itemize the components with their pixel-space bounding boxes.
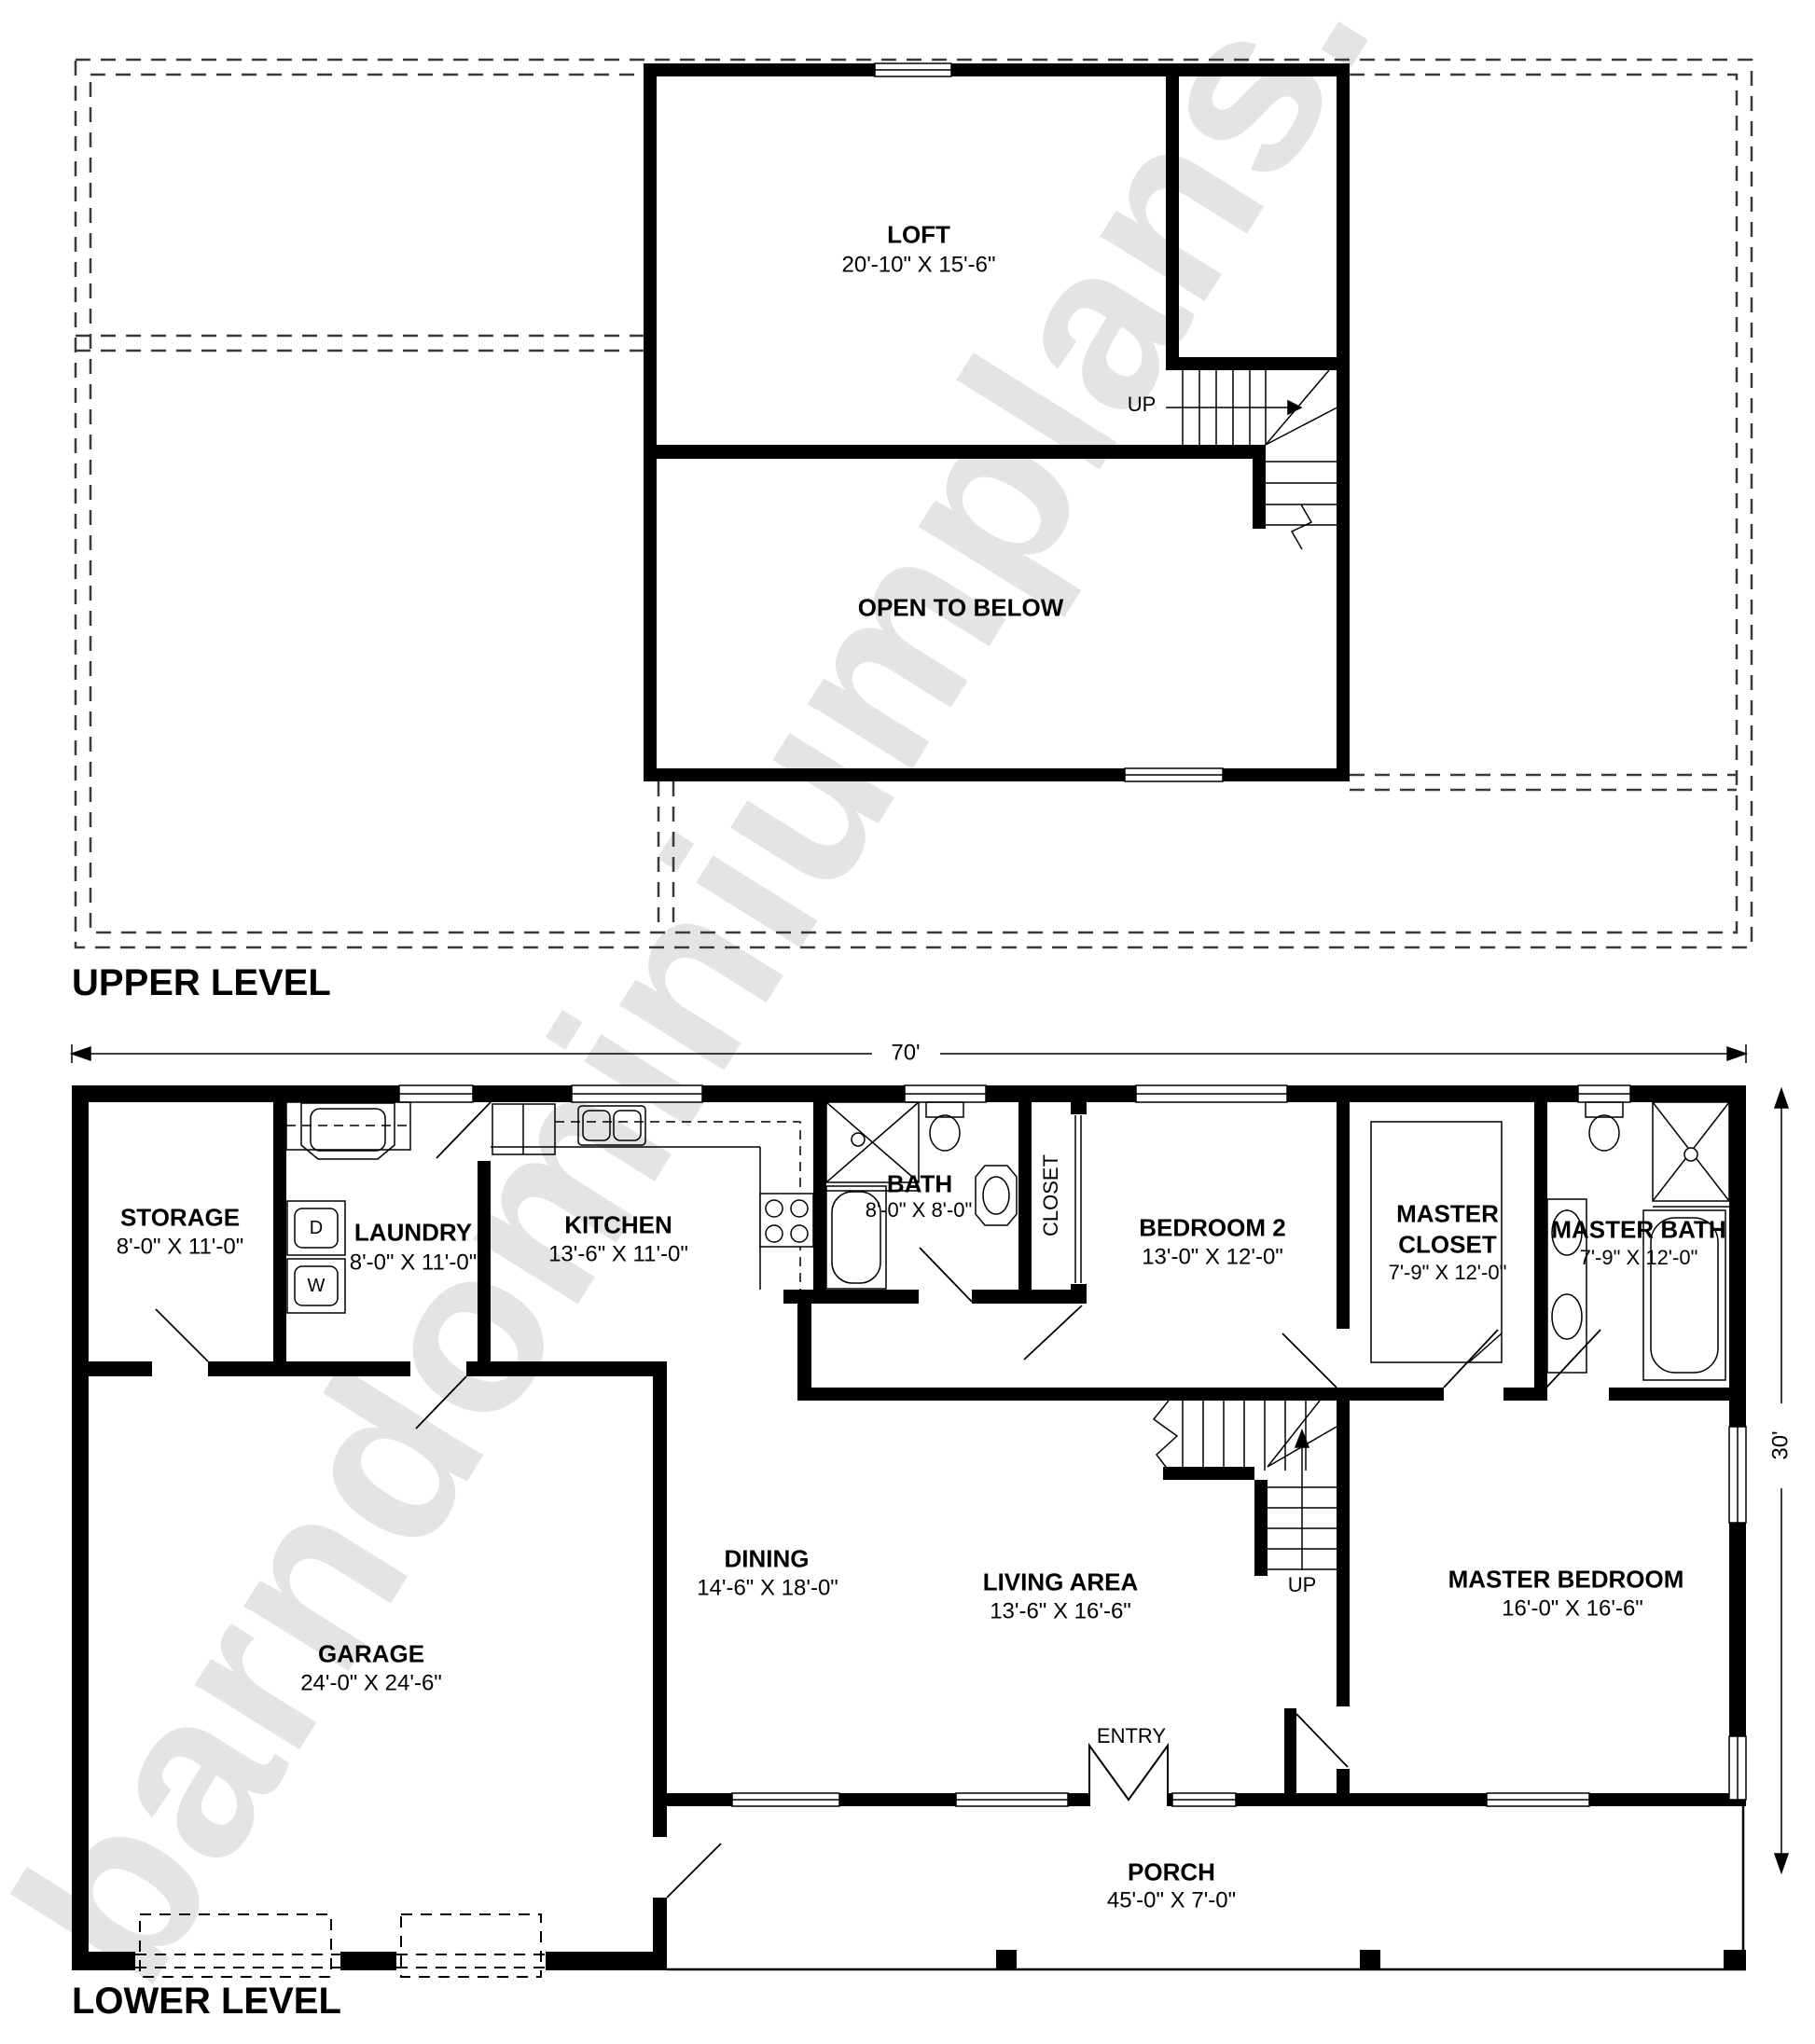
master-bedroom-dims: 16'-0" X 16'-6" [1502, 1596, 1643, 1623]
laundry-dims: 8'-0" X 11'-0" [350, 1250, 478, 1277]
entry-double-door [1089, 1746, 1169, 1809]
floor-plan-drawing [0, 0, 1815, 2044]
porch-dims: 45'-0" X 7'-0" [1107, 1888, 1236, 1915]
depth-dimension-label: 30' [1768, 1425, 1795, 1465]
porch-label: PORCH [1128, 1858, 1215, 1886]
dimension-line-30ft [1775, 1089, 1788, 1872]
upper-stairs-up-label: UP [1128, 393, 1157, 417]
loft-label: LOFT [887, 220, 950, 249]
closet-label: CLOSET [1039, 1154, 1063, 1236]
entry-label: ENTRY [1097, 1724, 1166, 1748]
laundry-label: LAUNDRY [354, 1218, 472, 1247]
lower-stairs-up-label: UP [1288, 1573, 1317, 1597]
loft-dims: 20'-10" X 15'-6" [842, 253, 996, 280]
bedroom2-label: BEDROOM 2 [1139, 1213, 1285, 1242]
living-area-label: LIVING AREA [983, 1568, 1139, 1596]
laundry-fixtures [286, 1102, 410, 1313]
bath-dims: 8'-0" X 8'-0" [866, 1198, 973, 1222]
dining-dims: 14'-6" X 18'-0" [697, 1576, 838, 1603]
master-closet-dims: 7'-9" X 12'-0" [1389, 1261, 1507, 1285]
garage-label: GARAGE [318, 1639, 424, 1668]
width-dimension-label: 70' [885, 1041, 925, 1068]
storage-dims: 8'-0" X 11'-0" [117, 1235, 244, 1262]
floor-plan-page: barndominiumplans.com [0, 0, 1815, 2044]
garage-porch-door-gap [653, 1837, 667, 1898]
master-bath-label: MASTER BATH [1551, 1215, 1725, 1244]
washer-label: W [308, 1275, 326, 1297]
storage-label: STORAGE [120, 1203, 240, 1232]
garage-doors [135, 1914, 546, 1977]
bedroom2-dims: 13'-0" X 12'-0" [1142, 1245, 1283, 1272]
garage-dims: 24'-0" X 24'-6" [300, 1671, 442, 1698]
master-bath-dims: 7'-9" X 12'-0" [1580, 1246, 1698, 1270]
master-bedroom-label: MASTER BEDROOM [1448, 1565, 1684, 1594]
upper-level-roof-outline [76, 60, 1752, 947]
dryer-label: D [310, 1217, 323, 1239]
lower-level-title: LOWER LEVEL [72, 1979, 341, 2023]
loft-walls [644, 63, 1350, 781]
upper-level-title: UPPER LEVEL [72, 960, 331, 1005]
kitchen-label: KITCHEN [564, 1210, 672, 1239]
open-to-below-label: OPEN TO BELOW [858, 593, 1064, 622]
kitchen-dims: 13'-6" X 11'-0" [548, 1242, 688, 1269]
living-area-dims: 13'-6" X 16'-6" [990, 1599, 1131, 1626]
bath-label: BATH [887, 1169, 952, 1198]
lower-stairs [1154, 1401, 1337, 1570]
master-closet-label: MASTER CLOSET [1364, 1199, 1531, 1260]
dining-label: DINING [725, 1544, 810, 1573]
